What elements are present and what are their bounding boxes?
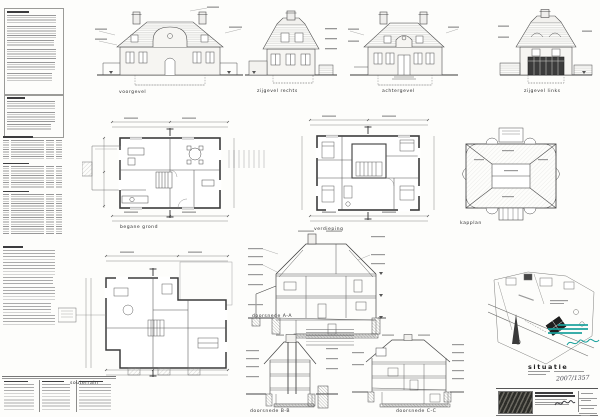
illegible-paragraph <box>7 101 55 110</box>
site-plan <box>488 270 600 370</box>
elevation-right-side: zijgevel rechts <box>243 9 339 95</box>
elevation-rear-label: achtergevel <box>382 89 415 94</box>
section-aa: doorsnede A-A <box>248 230 386 348</box>
illegible-column <box>56 194 62 234</box>
stamp-signature <box>566 336 600 350</box>
illegible-column <box>46 140 55 160</box>
drawing-sheet: voorgevel <box>0 0 600 417</box>
illegible-column <box>11 194 44 234</box>
illegible-paragraph <box>3 277 53 285</box>
elevation-right-side-label: zijgevel rechts <box>257 89 298 94</box>
section-cc: doorsnede C-C <box>352 334 464 414</box>
illegible-column <box>46 194 55 234</box>
illegible-paragraph <box>7 26 56 38</box>
plan-first-floor: verdieping <box>282 110 442 232</box>
illegible-paragraph <box>7 112 55 122</box>
spec-block-legend <box>3 246 59 334</box>
illegible-column <box>11 140 44 160</box>
title-block-photo <box>498 391 533 414</box>
title-block <box>496 388 598 416</box>
spec-heading <box>7 97 25 99</box>
spec-heading <box>7 11 29 13</box>
plan-ground-floor: begane grond <box>82 110 242 230</box>
site-scale-text <box>528 371 550 372</box>
plan-roof: kapplan <box>452 126 570 228</box>
section-bb-label: doorsnede B-B <box>250 409 290 414</box>
illegible-paragraph <box>7 49 56 60</box>
illegible-column <box>46 166 55 188</box>
plan-roof-label: kapplan <box>460 221 482 226</box>
site-note-text <box>528 374 546 375</box>
title-block-info-table <box>578 391 597 412</box>
elevation-front: voorgevel <box>95 5 245 97</box>
plan-basement: souterrain <box>58 250 233 386</box>
illegible-paragraph <box>7 40 54 47</box>
stamp-line <box>558 324 588 326</box>
site-note-text <box>554 371 584 372</box>
illegible-column <box>11 166 44 188</box>
illegible-paragraph <box>3 303 51 313</box>
stamp-line <box>548 332 582 334</box>
spec-subheading <box>3 191 29 192</box>
illegible-column <box>3 140 9 160</box>
elevation-front-label: voorgevel <box>119 90 146 95</box>
spec-table-materials <box>3 136 62 238</box>
spec-block-general <box>4 8 64 96</box>
elevation-left-side: zijgevel links <box>498 9 594 95</box>
section-cc-label: doorsnede C-C <box>396 409 436 414</box>
illegible-paragraph <box>3 250 55 260</box>
stamp-line <box>548 328 588 330</box>
spec-block-notes <box>4 94 64 138</box>
illegible-paragraph <box>7 73 52 81</box>
illegible-column <box>56 166 62 188</box>
illegible-paragraph <box>3 287 55 301</box>
illegible-paragraph <box>7 62 55 71</box>
spec-heading <box>3 136 33 138</box>
plan-ground-floor-label: begane grond <box>120 225 158 230</box>
dossier-number-handwriting: 2007/1357 <box>556 374 590 382</box>
watermark <box>228 150 268 168</box>
site-plan-title: situatie <box>528 363 568 371</box>
elevation-left-side-label: zijgevel links <box>524 89 561 94</box>
plan-basement-label: souterrain <box>70 381 98 386</box>
spec-heading <box>3 246 23 248</box>
illegible-column <box>56 140 62 160</box>
elevation-rear: achtergevel <box>348 7 460 95</box>
approval-stamp <box>544 324 600 352</box>
section-bb: doorsnede B-B <box>246 334 338 414</box>
title-block-signature <box>554 397 576 409</box>
spec-subheading <box>3 163 29 164</box>
illegible-column <box>3 194 9 234</box>
illegible-paragraph <box>7 15 56 24</box>
illegible-paragraph <box>3 262 55 275</box>
finish-table-column <box>2 380 39 412</box>
section-aa-label: doorsnede A-A <box>252 314 292 319</box>
illegible-paragraph <box>7 124 51 131</box>
illegible-paragraph <box>3 315 55 326</box>
illegible-column <box>3 166 9 188</box>
